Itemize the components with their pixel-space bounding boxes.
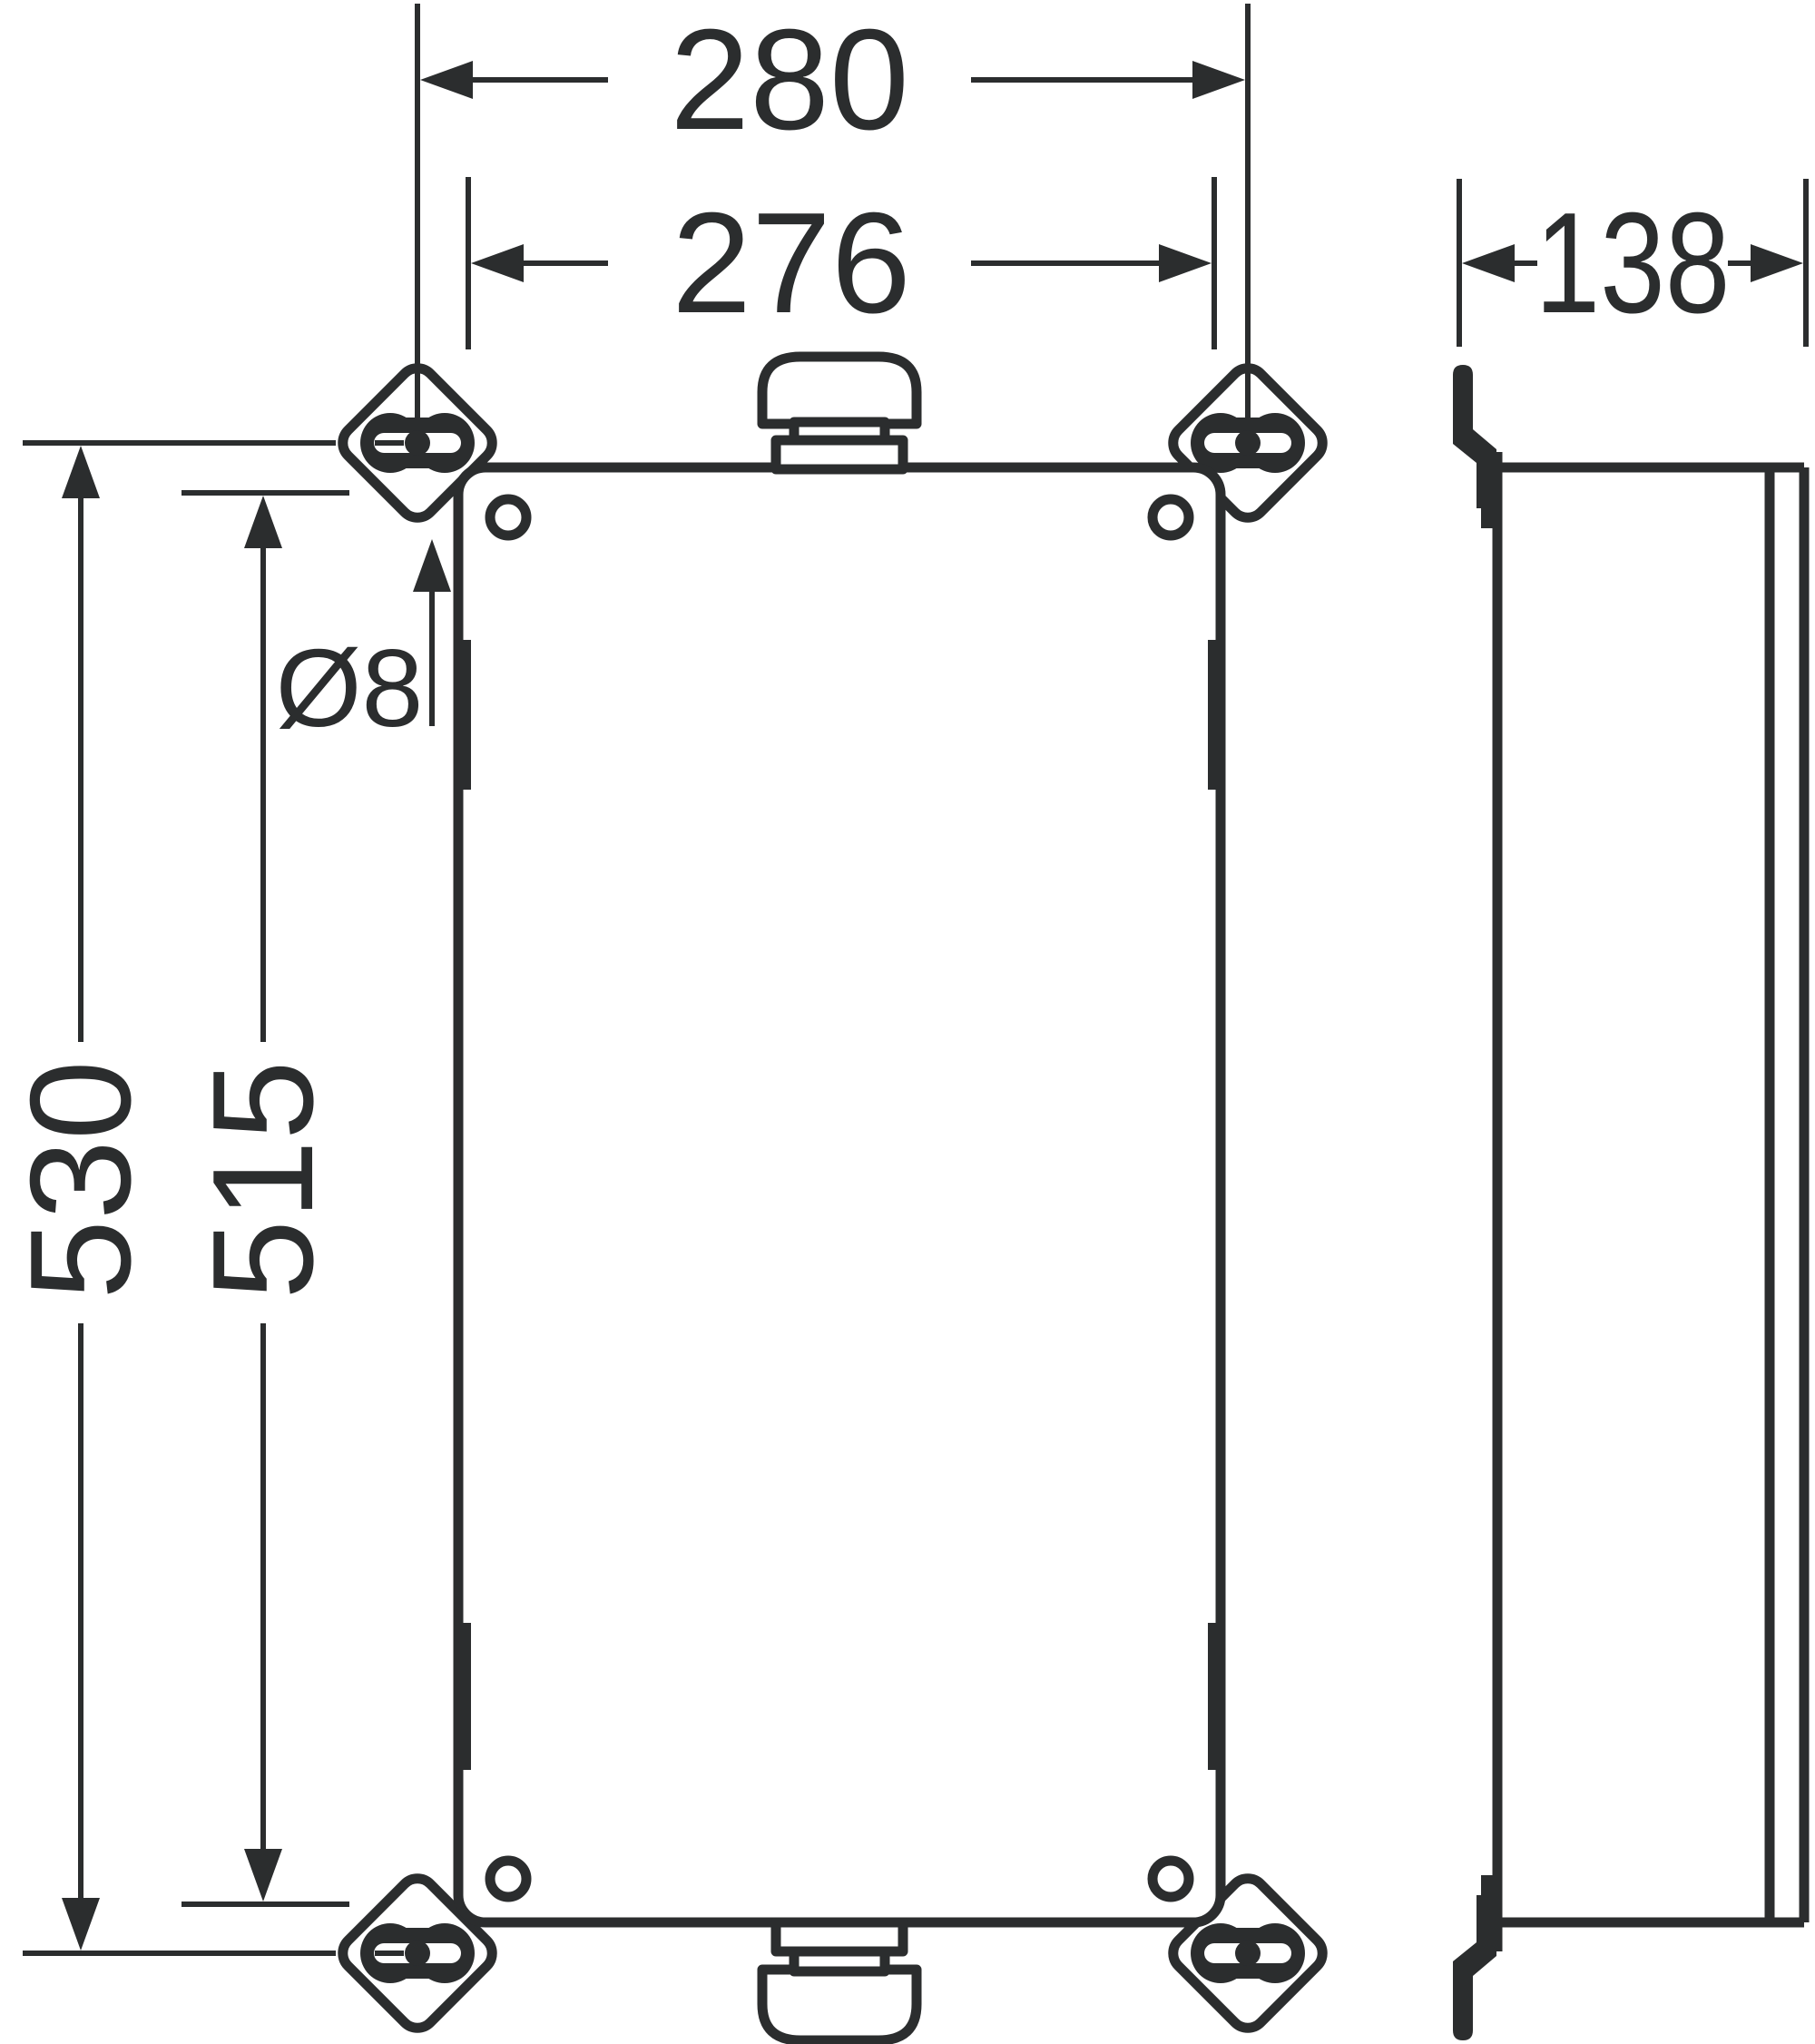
cable-gland-top bbox=[762, 357, 917, 469]
gland-cap bbox=[762, 1970, 917, 2040]
seam-mark-left-upper bbox=[454, 640, 471, 790]
keyhole-center-hole bbox=[1235, 430, 1261, 456]
seam-mark-right-upper bbox=[1208, 640, 1225, 790]
dimension-fixing-width: 276 bbox=[471, 183, 1212, 343]
seam-mark-right-lower bbox=[1208, 1623, 1225, 1770]
arrowhead-bottom bbox=[244, 1849, 282, 1902]
keyhole-center-hole bbox=[405, 430, 430, 456]
dim-label-overall-height: 530 bbox=[1, 1060, 161, 1300]
arrowhead-bottom bbox=[62, 1898, 100, 1951]
wall-flange-top bbox=[1453, 365, 1496, 508]
dimension-overall-width: 280 bbox=[420, 0, 1245, 160]
dim-label-fixing-width: 276 bbox=[672, 183, 911, 343]
keyhole-center-hole bbox=[1235, 1941, 1261, 1966]
enclosure-box-front bbox=[458, 467, 1221, 1922]
arrowhead-left bbox=[471, 244, 524, 282]
dim-label-fixing-height: 515 bbox=[183, 1060, 343, 1300]
gland-flange bbox=[776, 440, 903, 469]
keyhole-center-hole bbox=[405, 1941, 430, 1966]
arrowhead-left bbox=[420, 61, 473, 99]
arrowhead-right bbox=[1751, 244, 1803, 282]
dim-label-overall-width: 280 bbox=[670, 0, 909, 160]
wall-flange-bottom bbox=[1453, 1895, 1496, 2040]
gland-cap bbox=[762, 357, 917, 424]
dimension-overall-height: 530 bbox=[1, 446, 161, 1951]
dimension-depth: 138 bbox=[1462, 183, 1803, 343]
gland-flange bbox=[776, 1922, 903, 1951]
lid-screw-hole-top-right bbox=[1153, 499, 1189, 536]
arrowhead-left bbox=[1462, 244, 1515, 282]
arrowhead-top bbox=[62, 446, 100, 498]
technical-dimension-drawing: 280 276 530 515 Ø8 138 bbox=[0, 0, 1815, 2044]
lid-screw-hole-bottom-left bbox=[490, 1861, 526, 1897]
keyhole-slot bbox=[1191, 1923, 1305, 1983]
cable-gland-bottom bbox=[762, 1922, 917, 2040]
dimension-hole-diameter: Ø8 bbox=[276, 539, 451, 750]
arrowhead-right bbox=[1159, 244, 1212, 282]
arrowhead-leader bbox=[413, 539, 451, 592]
side-view bbox=[1453, 365, 1804, 2040]
lid-screw-hole-top-left bbox=[490, 499, 526, 536]
arrowhead-top bbox=[244, 496, 282, 548]
arrowhead-right bbox=[1192, 61, 1245, 99]
dim-label-depth: 138 bbox=[1535, 183, 1731, 343]
dim-label-hole-diameter: Ø8 bbox=[276, 626, 424, 750]
front-view bbox=[335, 357, 1329, 2040]
seam-mark-left-lower bbox=[454, 1623, 471, 1770]
lid-screw-hole-bottom-right bbox=[1153, 1861, 1189, 1897]
